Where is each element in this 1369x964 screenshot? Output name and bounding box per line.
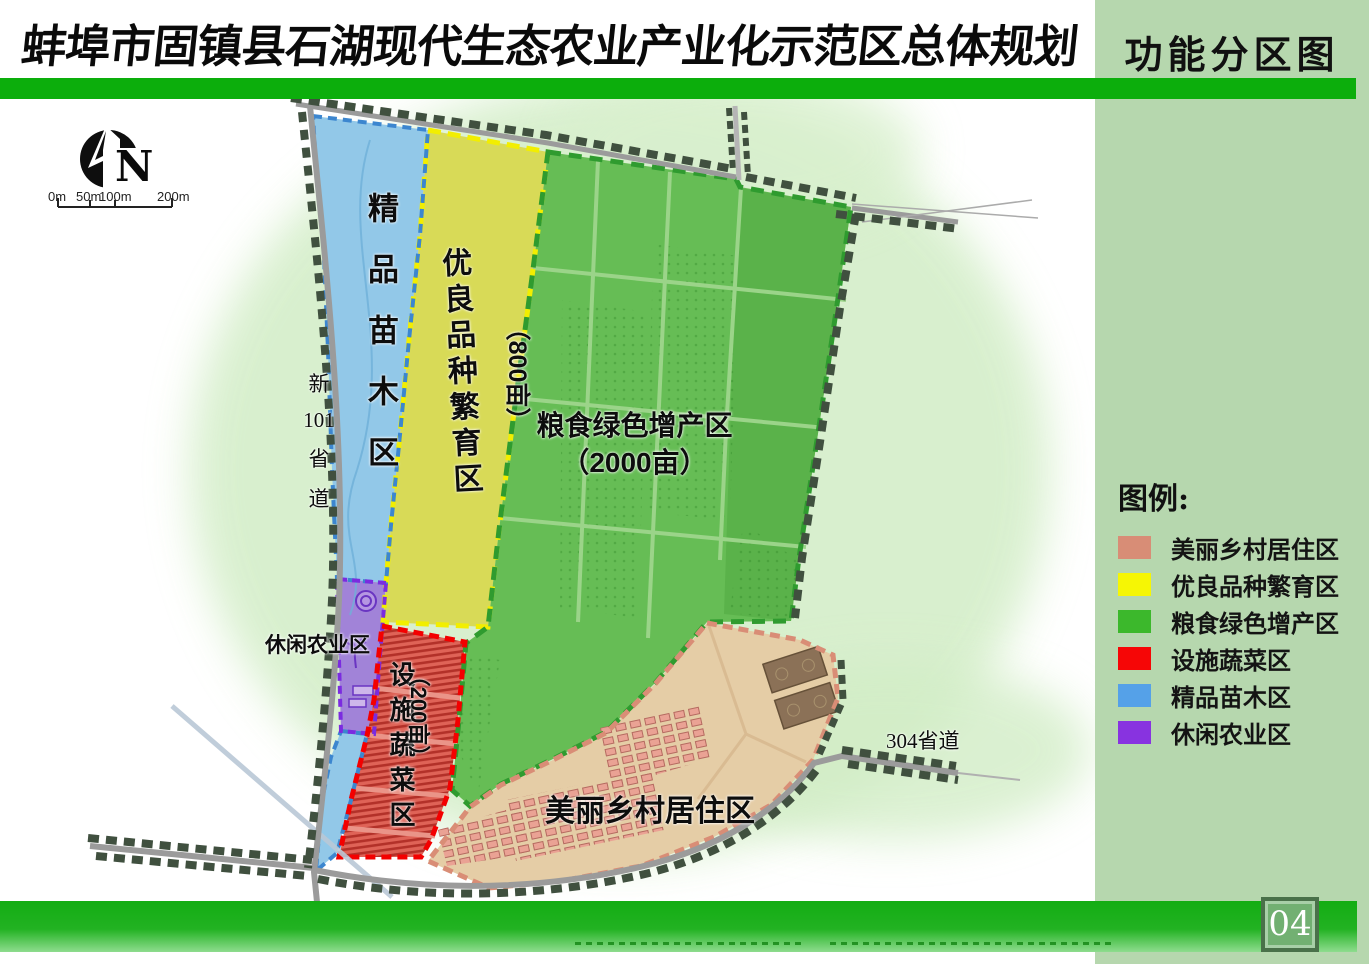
scale-0m: 0m bbox=[48, 189, 66, 204]
label-leisure-zone: 休闲农业区 bbox=[265, 629, 370, 659]
vegetable-swatch bbox=[1118, 647, 1151, 670]
compass-n-label: N bbox=[115, 142, 153, 191]
bar-watermark-dashes bbox=[575, 942, 805, 945]
label-vegetable-area: （200亩） bbox=[404, 648, 436, 784]
poster-page: 功能分区图 蚌埠市固镇县石湖现代生态农业产业化示范区总体规划 图例: 美丽乡村居… bbox=[0, 0, 1369, 964]
title-bar: 蚌埠市固镇县石湖现代生态农业产业化示范区总体规划 bbox=[0, 0, 1095, 78]
nursery-swatch bbox=[1118, 684, 1151, 707]
legend-item-breeding: 优良品种繁育区 bbox=[1118, 573, 1339, 596]
label-village-zone: 美丽乡村居住区 bbox=[545, 786, 755, 830]
village-swatch bbox=[1118, 536, 1151, 559]
leisure-swatch bbox=[1118, 721, 1151, 744]
legend: 图例: 美丽乡村居住区 优良品种繁育区 粮食绿色增产区 设施蔬菜区 精品苗木区 … bbox=[1118, 474, 1339, 758]
legend-item-grain: 粮食绿色增产区 bbox=[1118, 610, 1339, 633]
plan-title: 蚌埠市固镇县石湖现代生态农业产业化示范区总体规划 bbox=[19, 10, 1082, 75]
label-grain-zone: 粮食绿色增产区 （2000亩） bbox=[527, 407, 742, 481]
bar-watermark-dashes bbox=[830, 942, 1115, 945]
label-nursery-zone: 精品苗木区 bbox=[358, 192, 403, 497]
grain-swatch bbox=[1118, 610, 1151, 633]
scale-200m: 200m bbox=[157, 189, 190, 204]
label-road-101: 新 101 省 道 bbox=[297, 368, 341, 513]
bottom-green-bar bbox=[0, 901, 1357, 952]
page-number-badge: 04 bbox=[1261, 897, 1319, 952]
legend-title: 图例: bbox=[1118, 474, 1339, 518]
legend-item-leisure: 休闲农业区 bbox=[1118, 721, 1339, 744]
legend-item-vegetable: 设施蔬菜区 bbox=[1118, 647, 1339, 670]
scale-50m: 50m bbox=[76, 189, 101, 204]
legend-item-nursery: 精品苗木区 bbox=[1118, 684, 1339, 707]
label-road-304: 304省道 bbox=[886, 725, 960, 755]
scale-100m: 100m bbox=[99, 189, 132, 204]
map-sheet-title: 功能分区图 bbox=[1095, 24, 1369, 79]
top-green-bar bbox=[0, 78, 1356, 99]
breeding-swatch bbox=[1118, 573, 1151, 596]
legend-item-village: 美丽乡村居住区 bbox=[1118, 536, 1339, 559]
